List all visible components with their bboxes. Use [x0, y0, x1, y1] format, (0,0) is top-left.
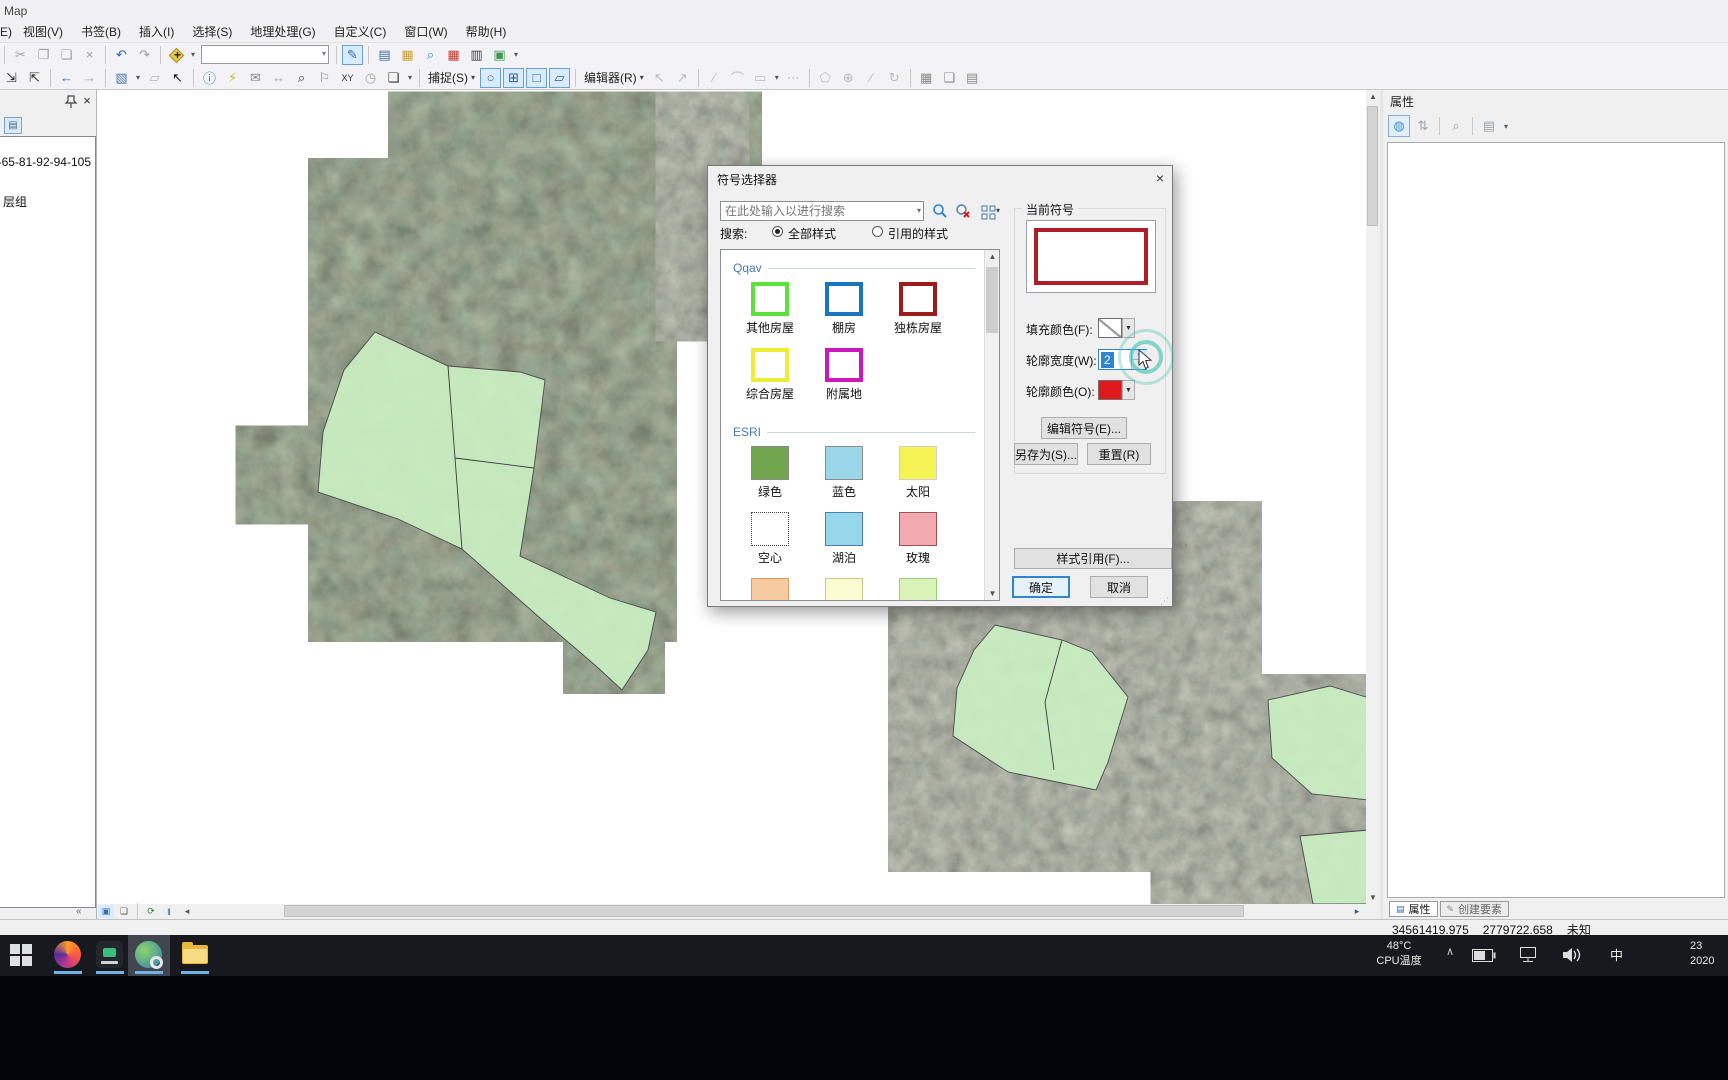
menu-item-3[interactable]: 插入(I) — [130, 22, 183, 42]
clock-time: 23 — [1690, 939, 1728, 954]
toc-scroll-left-icon[interactable]: « — [76, 906, 82, 917]
menu-item-6[interactable]: 自定义(C) — [325, 22, 396, 42]
pause-drawing-icon[interactable]: ‖ — [161, 905, 177, 918]
toolbar-separator — [419, 69, 420, 87]
symbol-label: 玫瑰 — [881, 549, 955, 566]
symbol-group-name: Qqav — [733, 261, 762, 275]
chevron-down-icon[interactable]: ▾ — [917, 206, 921, 215]
toolbar-separator — [336, 46, 337, 64]
symbol-label: 综合房屋 — [733, 385, 807, 402]
dialog-title: 符号选择器 — [717, 171, 777, 188]
style-references-button[interactable]: 样式引用(F)... — [1014, 548, 1172, 569]
fixed-zoom-in-icon[interactable]: ⇲ — [1, 68, 22, 88]
pin-icon[interactable] — [64, 95, 78, 109]
time-slider-icon[interactable]: ◷ — [360, 68, 381, 88]
clock-date: 2020 — [1690, 954, 1728, 969]
endpoint-arc-icon[interactable]: ⌒ — [727, 68, 748, 88]
symbol-swatch[interactable] — [899, 446, 937, 480]
create-features-tab-icon: ✎ — [1447, 904, 1455, 915]
sort-fields-icon[interactable]: ⇅ — [1412, 115, 1434, 137]
toolbar-separator — [698, 69, 699, 87]
reshape-icon[interactable]: ⬠ — [815, 68, 836, 88]
toc-panel: × ▤ -65-81-92-94-105 层组 « — [0, 90, 97, 919]
go-forward-extent-icon[interactable]: → — [79, 68, 100, 88]
cut-polygons-icon[interactable]: ⊕ — [838, 68, 859, 88]
symbol-swatch[interactable] — [751, 348, 789, 382]
ok-button[interactable]: 确定 — [1012, 576, 1070, 598]
layout-view-button[interactable]: ❏ — [116, 905, 132, 918]
symbol-selector-dialog: 符号选择器 × ▾ ▾ 搜索: 全部样式 引用的样式 Qqav其他房屋棚房独栋房… — [707, 165, 1173, 607]
snap-end-icon[interactable]: ⊞ — [503, 68, 524, 88]
close-icon[interactable]: × — [1146, 166, 1174, 190]
field-options-dropdown[interactable]: ▾ — [1501, 122, 1511, 131]
toolbar-separator — [105, 46, 106, 64]
symbol-swatch[interactable] — [751, 578, 789, 601]
symbol-group: Qqav其他房屋棚房独栋房屋综合房屋附属地 — [733, 260, 983, 414]
symbol-swatch[interactable] — [899, 578, 937, 601]
undo-icon[interactable]: ↶ — [111, 45, 132, 65]
toc-panel-header: × — [0, 90, 96, 114]
mouse-cursor — [1138, 349, 1153, 370]
symbol-swatch[interactable] — [825, 348, 863, 382]
clear-search-icon[interactable] — [953, 201, 973, 221]
symbol-item[interactable] — [881, 578, 955, 601]
hscroll-track[interactable] — [196, 904, 1348, 919]
redo-icon[interactable]: ↷ — [134, 45, 155, 65]
symbol-item[interactable]: 附属地 — [807, 348, 881, 404]
radio-referenced-styles[interactable] — [872, 226, 883, 237]
taskbar: 48°CCPU温度 ∧ 中 232020 — [0, 935, 1728, 976]
edit-annotation-icon[interactable]: ↗ — [672, 68, 693, 88]
status-bar: 34561419.9752779722.658未知 — [0, 919, 1728, 935]
symbol-item[interactable]: 空心 — [733, 512, 807, 568]
fill-color-label: 填充颜色(F): — [1026, 321, 1104, 338]
list-view-icon[interactable] — [978, 202, 998, 222]
symbol-list-scrollbar[interactable]: ▲ ▼ — [984, 250, 999, 600]
symbol-item[interactable]: 湖泊 — [807, 512, 881, 568]
symbol-item[interactable]: 太阳 — [881, 446, 955, 502]
toolbar-separator — [160, 46, 161, 64]
toolbar-separator — [193, 69, 194, 87]
straight-segment-icon[interactable]: ∕ — [704, 68, 725, 88]
refresh-view-icon[interactable]: ⟳ — [143, 905, 159, 918]
toolbar-overflow-dropdown[interactable]: ▾ — [405, 73, 415, 82]
current-symbol-preview — [1026, 220, 1156, 293]
select-features-dropdown[interactable]: ▾ — [133, 73, 143, 82]
go-back-extent-icon[interactable]: ← — [56, 68, 77, 88]
scroll-down-icon[interactable]: ▼ — [1366, 891, 1380, 905]
editor-menu[interactable]: 编辑器(R)▾ — [580, 68, 648, 88]
symbol-swatch[interactable] — [899, 282, 937, 316]
symbol-group-header: Qqav — [733, 260, 983, 276]
attributes-content-area[interactable] — [1387, 142, 1725, 898]
radio-all-styles[interactable] — [772, 226, 783, 237]
clear-selection-icon[interactable]: ▱ — [144, 68, 165, 88]
menu-item-5[interactable]: 地理处理(G) — [241, 22, 324, 42]
current-symbol-preview-inner — [1034, 228, 1148, 285]
symbol-item[interactable]: 独栋房屋 — [881, 282, 955, 338]
split-icon[interactable]: ∕ — [861, 68, 882, 88]
symbol-label: 空心 — [733, 549, 807, 566]
toolbar-separator — [4, 46, 5, 64]
vscroll-thumb[interactable] — [1367, 106, 1378, 226]
symbol-swatch[interactable] — [751, 446, 789, 480]
zoom-to-selected-icon[interactable]: ⌕ — [1445, 115, 1467, 137]
symbol-label: 太阳 — [881, 483, 955, 500]
symbol-label: 其他房屋 — [733, 319, 807, 336]
view-mode-dropdown[interactable]: ▾ — [996, 206, 1000, 215]
symbol-label: 棚房 — [807, 319, 881, 336]
menu-item-4[interactable]: 选择(S) — [183, 22, 241, 42]
construction-dropdown[interactable]: ▾ — [772, 73, 782, 82]
snap-edge-icon[interactable]: ▱ — [549, 68, 570, 88]
map-horizontal-scrollbar[interactable]: ▣❏⟳‖◂ ▸ — [97, 904, 1366, 919]
symbol-label: 绿色 — [733, 483, 807, 500]
paste-icon[interactable]: ❏ — [56, 45, 77, 65]
toolbar-separator — [575, 69, 576, 87]
menu-item-1[interactable]: 视图(V) — [14, 22, 72, 42]
window-title: Map — [4, 4, 27, 18]
cancel-button[interactable]: 取消 — [1090, 576, 1148, 598]
edit-sketch-icon[interactable]: ✎ — [342, 45, 363, 65]
fixed-zoom-out-icon[interactable]: ⇱ — [24, 68, 45, 88]
table-of-contents-icon[interactable]: ▤ — [374, 45, 395, 65]
battery-icon[interactable] — [1472, 949, 1496, 962]
viewer-window-icon[interactable]: ❏ — [383, 68, 404, 88]
toolbar-row-1: ✂❐❏×↶↷+▾▾✎▤▦⌕▦▥▣▾ — [0, 42, 1728, 66]
group-rule — [768, 268, 975, 269]
symbol-swatch[interactable] — [751, 512, 789, 546]
map-vertical-scrollbar[interactable]: ▲ ▼ — [1366, 90, 1380, 919]
toolbar-separator — [50, 69, 51, 87]
select-elements-icon[interactable]: ↖ — [167, 68, 188, 88]
search-label: 搜索: — [720, 225, 747, 242]
symbol-swatch[interactable] — [825, 282, 863, 316]
add-data-icon[interactable]: + — [166, 45, 187, 65]
measure-icon[interactable]: ↔ — [268, 68, 289, 88]
tab-create-features[interactable]: ✎创建要素 — [1440, 901, 1510, 917]
search-icon[interactable] — [930, 201, 950, 221]
group-rule — [767, 432, 975, 433]
scroll-right-icon[interactable]: ▸ — [1349, 905, 1365, 918]
scroll-up-icon[interactable]: ▲ — [1366, 90, 1380, 104]
symbol-group-name: ESRI — [733, 425, 761, 439]
attributes-panel-title: 属性 — [1390, 93, 1414, 110]
symbol-item[interactable] — [733, 578, 807, 601]
arctoolbox-icon[interactable]: ▦ — [443, 45, 464, 65]
menu-item-2[interactable]: 书签(B) — [72, 22, 130, 42]
capture-app-icon[interactable] — [96, 941, 123, 968]
symbol-swatch[interactable] — [825, 512, 863, 546]
resize-grip[interactable]: ⋰ — [1160, 596, 1170, 606]
toolbar-overflow-dropdown[interactable]: ▾ — [511, 50, 521, 59]
select-features-icon[interactable]: ▧ — [111, 68, 132, 88]
taskbar-running-indicator — [54, 971, 82, 974]
attributes-window-icon[interactable]: ❏ — [939, 68, 960, 88]
tab-attributes[interactable]: ▤属性 — [1389, 901, 1438, 917]
hyperlink-icon[interactable]: ⚡ — [222, 68, 243, 88]
outline-color-label: 轮廓颜色(O): — [1026, 383, 1104, 400]
network-icon[interactable] — [1518, 947, 1540, 964]
menu-item-0[interactable]: E) — [0, 22, 14, 42]
clock[interactable]: 232020 — [1690, 939, 1728, 969]
attributes-toolbar: ◍ ⇅ ⌕ ▤ ▾ — [1387, 113, 1511, 139]
cut-icon[interactable]: ✂ — [10, 45, 31, 65]
menu-item-7[interactable]: 窗口(W) — [395, 22, 456, 42]
snap-vertex-icon[interactable]: □ — [526, 68, 547, 88]
toolbar-row-2: ⇲⇱←→▧▾▱↖ⓘ⚡✉↔⌕⚐XY◷❏▾捕捉(S)▾○⊞□▱编辑器(R)▾↖↗∕⌒… — [0, 66, 1728, 90]
scroll-up-icon[interactable]: ▲ — [985, 252, 1000, 261]
taskbar-running-indicator — [96, 971, 124, 974]
trace-icon[interactable]: ▭ — [750, 68, 771, 88]
outline-width-value[interactable]: 2 — [1101, 352, 1114, 368]
sketch-properties-icon[interactable]: ▤ — [962, 68, 983, 88]
symbol-item[interactable] — [807, 578, 881, 601]
menu-item-8[interactable]: 帮助(H) — [457, 22, 516, 42]
hscroll-thumb[interactable] — [284, 905, 1244, 917]
symbol-label: 附属地 — [807, 385, 881, 402]
delete-icon[interactable]: × — [79, 45, 100, 65]
attributes-tab-icon: ▤ — [1396, 904, 1405, 915]
current-symbol-label: 当前符号 — [1022, 201, 1078, 218]
toc-layer-name[interactable]: -65-81-92-94-105 — [0, 155, 91, 171]
menu-bar: E)视图(V)书签(B)插入(I)选择(S)地理处理(G)自定义(C)窗口(W)… — [0, 22, 1728, 42]
field-options-icon[interactable]: ▤ — [1478, 115, 1500, 137]
snap-point-icon[interactable]: ○ — [480, 68, 501, 88]
add-data-dropdown[interactable]: ▾ — [188, 50, 198, 59]
symbol-label: 蓝色 — [807, 483, 881, 500]
file-explorer-icon[interactable] — [182, 945, 208, 964]
outline-width-label: 轮廓宽度(W): — [1026, 352, 1104, 369]
search-input[interactable] — [720, 201, 924, 221]
symbol-item[interactable]: 棚房 — [807, 282, 881, 338]
symbol-list: Qqav其他房屋棚房独栋房屋综合房屋附属地ESRI绿色蓝色太阳空心湖泊玫瑰 — [721, 250, 983, 601]
symbol-item[interactable]: 综合房屋 — [733, 348, 807, 404]
toc-group-layer[interactable]: 层组 — [3, 193, 27, 210]
catalog-icon[interactable]: ▦ — [397, 45, 418, 65]
go-to-xy-icon[interactable]: XY — [337, 68, 358, 88]
html-popup-icon[interactable]: ✉ — [245, 68, 266, 88]
toolbar-separator — [1439, 117, 1440, 135]
identify-icon[interactable]: ⓘ — [199, 68, 220, 88]
find-route-icon[interactable]: ⚐ — [314, 68, 335, 88]
outline-color-button[interactable] — [1098, 380, 1122, 400]
toc-display-mode-icon[interactable]: ▤ — [4, 117, 22, 134]
taskbar-running-indicator — [135, 971, 163, 974]
symbol-item[interactable]: 其他房屋 — [733, 282, 807, 338]
toolbar-separator — [368, 46, 369, 64]
cpu-temperature[interactable]: 48°CCPU温度 — [1366, 939, 1432, 969]
arcmap-icon[interactable] — [135, 941, 162, 968]
toc-layer-list: -65-81-92-94-105 层组 — [0, 136, 96, 908]
close-icon[interactable]: × — [80, 92, 94, 110]
symbol-swatch[interactable] — [825, 578, 863, 601]
toolbar-separator — [1472, 117, 1473, 135]
attributes-panel: 属性 ◍ ⇅ ⌕ ▤ ▾ ▤属性 ✎创建要素 — [1383, 90, 1728, 919]
copy-icon[interactable]: ❐ — [33, 45, 54, 65]
speaker-icon[interactable] — [1562, 946, 1584, 964]
start-button[interactable] — [10, 944, 32, 966]
toolbar-separator — [809, 69, 810, 87]
scroll-down-icon[interactable]: ▼ — [985, 589, 1000, 598]
ime-indicator[interactable]: 中 — [1610, 945, 1623, 964]
symbol-group: ESRI绿色蓝色太阳空心湖泊玫瑰 — [733, 424, 983, 601]
radio-referenced-styles-label[interactable]: 引用的样式 — [888, 225, 948, 242]
symbol-label: 湖泊 — [807, 549, 881, 566]
symbol-label: 独栋房屋 — [881, 319, 955, 336]
symbol-group-header: ESRI — [733, 424, 983, 440]
panel-tabs: ▤属性 ✎创建要素 — [1389, 901, 1511, 917]
create-features-window-icon[interactable]: ▦ — [916, 68, 937, 88]
rotate-icon[interactable]: ↻ — [884, 68, 905, 88]
edit-symbol-button[interactable]: 编辑符号(E)... — [1041, 417, 1127, 439]
reset-button[interactable]: 重置(R) — [1087, 443, 1151, 465]
symbol-swatch[interactable] — [751, 282, 789, 316]
symbol-swatch[interactable] — [899, 512, 937, 546]
modelbuilder-icon[interactable]: ▣ — [489, 45, 510, 65]
search-window-icon[interactable]: ⌕ — [420, 45, 441, 65]
symbol-search-combo[interactable]: ▾ — [720, 201, 924, 221]
radio-all-styles-label[interactable]: 全部样式 — [788, 225, 836, 242]
toolbar-separator — [910, 69, 911, 87]
toolbar-separator — [105, 69, 106, 87]
firefox-icon[interactable] — [54, 941, 81, 968]
save-as-button[interactable]: 另存为(S)... — [1014, 443, 1078, 465]
map-scale-combo[interactable]: ▾ — [201, 45, 329, 64]
window-titlebar: Map — [0, 0, 1728, 22]
symbol-swatch[interactable] — [825, 446, 863, 480]
letterbox-padding — [0, 976, 1728, 1080]
find-icon[interactable]: ⌕ — [291, 68, 312, 88]
symbol-item[interactable]: 蓝色 — [807, 446, 881, 502]
scrollbar-thumb[interactable] — [986, 267, 998, 333]
symbol-item[interactable]: 玫瑰 — [881, 512, 955, 568]
snapping-menu[interactable]: 捕捉(S)▾ — [424, 68, 479, 88]
scroll-left-icon[interactable]: ◂ — [179, 905, 195, 918]
fill-color-button[interactable] — [1098, 318, 1122, 338]
toolbar-separator — [137, 903, 138, 921]
symbol-item[interactable]: 绿色 — [733, 446, 807, 502]
point-icon[interactable]: ⋯ — [783, 68, 804, 88]
edit-tool-icon[interactable]: ↖ — [649, 68, 670, 88]
outline-color-dropdown[interactable]: ▼ — [1122, 380, 1135, 400]
tray-expand-icon[interactable]: ∧ — [1446, 945, 1454, 958]
symbol-list-box[interactable]: Qqav其他房屋棚房独栋房屋综合房屋附属地ESRI绿色蓝色太阳空心湖泊玫瑰 ▲ … — [720, 249, 1000, 601]
python-window-icon[interactable]: ▥ — [466, 45, 487, 65]
data-view-button[interactable]: ▣ — [98, 905, 114, 918]
taskbar-running-indicator — [181, 971, 209, 974]
highlight-all-icon[interactable]: ◍ — [1388, 115, 1410, 137]
